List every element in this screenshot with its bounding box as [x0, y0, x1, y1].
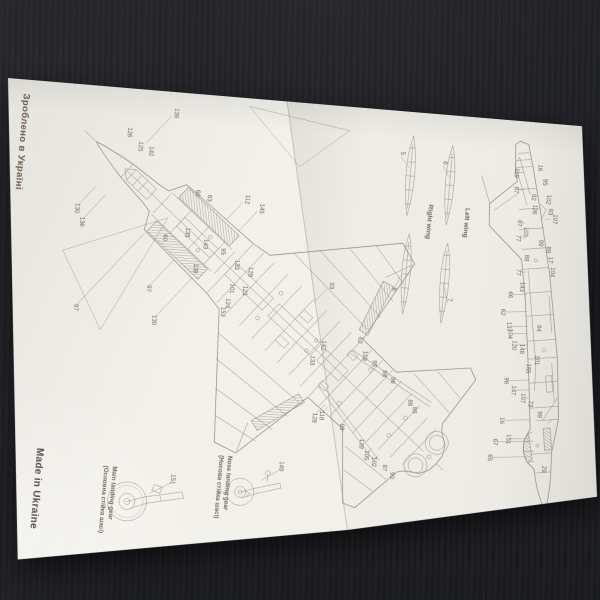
nose-gear-strut: [240, 480, 281, 501]
part-number-callout: 105: [362, 450, 369, 461]
part-number-callout: 143: [201, 239, 208, 250]
part-number-callout: 101: [228, 283, 235, 294]
part-number-callout: 126: [125, 127, 132, 138]
part-number-callout: 89: [544, 246, 551, 254]
part-number-callout: 145: [257, 203, 264, 214]
part-number-callout: 97: [145, 285, 152, 293]
main-gear-label: Main landing gear (Основна стійка шасі): [97, 465, 118, 534]
part-number-callout: 62: [356, 337, 363, 345]
part-number-callout: 147: [509, 385, 516, 396]
part-number-callout: 66: [506, 291, 513, 299]
callout-leader-line: [150, 259, 174, 288]
part-number-callout: 16: [536, 164, 543, 172]
part-number-callout: 148: [518, 344, 525, 355]
part-number-callout: 136: [78, 216, 85, 227]
part-number-callout: 151: [169, 474, 176, 485]
part-number-callout: 73: [526, 400, 533, 408]
part-number-callout: 98: [380, 370, 387, 378]
part-number-callout: 130: [150, 315, 157, 326]
part-number-callout: 112: [243, 194, 250, 205]
part-number-callout: 87: [515, 220, 522, 228]
part-number-callout: 120: [510, 340, 517, 351]
part-number-callout: 102: [544, 194, 551, 205]
part-number-callout: 155: [524, 363, 531, 374]
part-number-callout: 94: [535, 325, 542, 333]
callout-leader-line: [226, 201, 242, 221]
part-number-callout: 87: [380, 464, 387, 472]
part-number-callout: 99: [537, 240, 544, 248]
part-number-callout: 151: [504, 434, 511, 445]
part-number-callout: 96: [389, 377, 396, 385]
part-number-callout: 104: [548, 267, 555, 278]
part-number-callout: 63: [205, 195, 212, 203]
part-number-callout: 142: [147, 146, 154, 157]
instruction-sheet-drawing: Зроблено в Україні Made in Ukraine: [0, 78, 600, 600]
part-number-callout: 138: [191, 263, 198, 274]
part-number-callout: 89: [410, 407, 417, 415]
folded-half-shading: [252, 101, 600, 550]
part-number-callout: 139: [357, 439, 364, 450]
part-number-callout: 133: [233, 260, 240, 271]
part-number-callout: 102: [370, 457, 377, 468]
part-number-callout: 87: [512, 186, 519, 194]
part-number-callout: 118: [317, 410, 324, 421]
part-number-callout: 95: [219, 248, 226, 256]
callout-leader-line: [83, 194, 105, 221]
part-number-callout: 77: [514, 269, 521, 277]
part-number-callout: 139: [172, 108, 179, 119]
part-number-callout: 62: [499, 309, 506, 317]
part-number-callout: 103: [521, 227, 528, 238]
callout-leader-line: [77, 228, 145, 310]
photo-of-instruction-sheet: Зроблено в Україні Made in Ukraine: [0, 0, 600, 600]
part-number-callout: 153: [219, 307, 226, 318]
part-number-callout: 130: [73, 203, 80, 214]
part-number-callout: 107: [551, 214, 558, 225]
part-number-callout: 128: [310, 413, 317, 424]
part-number-callout: 77: [514, 235, 521, 243]
part-number-callout: 95: [541, 179, 548, 187]
part-number-callout: 60: [194, 190, 201, 198]
part-number-callout: 29: [540, 466, 547, 474]
part-number-callout: 126: [530, 204, 537, 215]
callout-leader-line: [261, 469, 279, 482]
part-number-callout: 123: [241, 285, 248, 296]
part-number-callout: 99: [338, 424, 345, 432]
part-number-callout: 60: [161, 234, 168, 242]
part-number-callout: 88: [522, 254, 529, 262]
nose-landing-gear-detail: Nose landing gear (Носова стійка шасі): [212, 455, 283, 524]
part-number-callout: 67: [491, 438, 498, 446]
part-number-callout: 97: [72, 304, 79, 312]
model-kit-instruction-sheet: Зроблено в Україні Made in Ukraine: [0, 78, 600, 600]
part-number-callout: 99: [535, 411, 542, 419]
part-number-callout: 17: [546, 256, 553, 264]
part-number-callout: 104: [506, 329, 513, 340]
callout-leader-line: [239, 210, 258, 232]
part-number-callout: 143: [518, 281, 525, 292]
part-number-callout: 103: [361, 351, 368, 362]
paper-sheet-wrapper: Зроблено в Україні Made in Ukraine: [0, 78, 600, 600]
part-number-callout: 135: [183, 227, 190, 238]
callout-leader-line: [155, 275, 192, 320]
part-number-callout: 96: [502, 377, 509, 385]
part-number-callout: 107: [519, 393, 526, 404]
part-number-callout: 125: [136, 141, 143, 152]
part-number-callout: 93: [327, 282, 334, 290]
part-number-callout: 101: [533, 355, 540, 366]
brand-english-label: Made in Ukraine: [27, 447, 45, 529]
part-number-callout: 65: [486, 454, 493, 462]
part-number-callout: 129: [246, 267, 253, 278]
part-number-callout: 142: [319, 340, 326, 351]
part-number-callout: 119: [512, 168, 519, 179]
part-number-callout: 92: [530, 194, 537, 202]
part-number-callout: 95: [370, 360, 377, 368]
nose-gear-label: Nose landing gear (Носова стійка шасі): [212, 455, 233, 520]
main-gear-part-sketch: [152, 485, 163, 494]
part-number-callout: 90: [388, 472, 395, 480]
part-number-callout: 16: [498, 417, 505, 425]
pitot-line: [85, 131, 97, 142]
nose-gear-part-sketch: [265, 470, 270, 475]
part-number-callout: 149: [277, 461, 284, 472]
part-number-callout: 133: [308, 355, 315, 366]
